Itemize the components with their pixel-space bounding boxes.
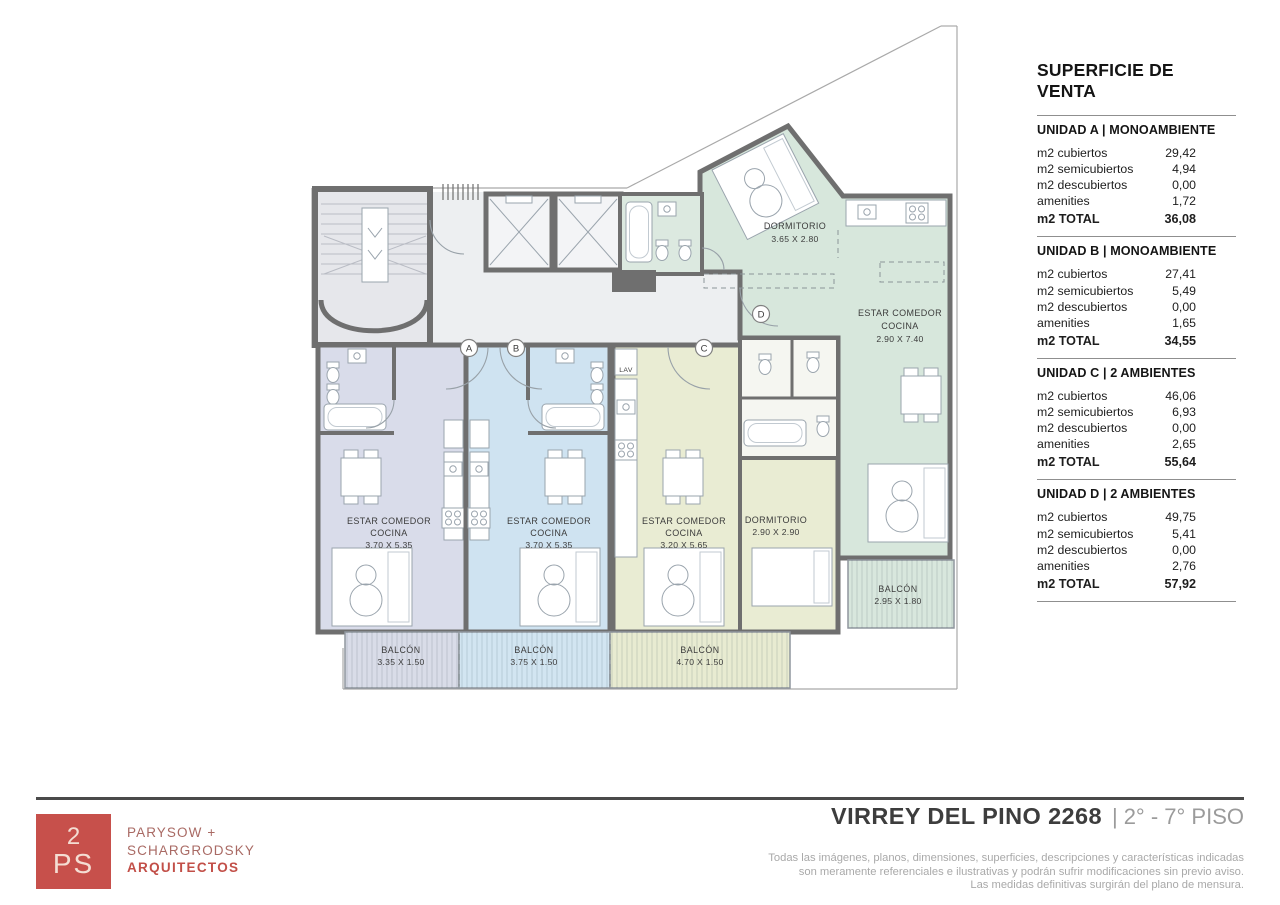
row-label: m2 cubiertos: [1037, 509, 1146, 525]
disclaimer-line-1: Todas las imágenes, planos, dimensiones,…: [768, 852, 1244, 866]
unit-letter-c: C: [696, 340, 713, 357]
table-row: m2 semicubiertos6,93: [1037, 404, 1236, 420]
row-label: m2 cubiertos: [1037, 266, 1146, 282]
unit-letter-b: B: [508, 340, 525, 357]
table-row: amenities1,72: [1037, 193, 1236, 209]
unit-a-room-label: ESTAR COMEDOR: [347, 516, 431, 526]
row-value: 29,42: [1146, 145, 1196, 161]
table-row-total: m2 TOTAL34,55: [1037, 333, 1236, 349]
row-value: 5,49: [1146, 283, 1196, 299]
table-row: m2 descubiertos0,00: [1037, 542, 1236, 558]
unit-c-lav-label: LAV: [619, 367, 633, 374]
table-row: m2 descubiertos0,00: [1037, 177, 1236, 193]
row-label: m2 descubiertos: [1037, 420, 1146, 436]
balcony-b-dims: 3.75 X 1.50: [510, 657, 557, 667]
total-label: m2 TOTAL: [1037, 333, 1146, 349]
balcony-d-label: BALCÓN: [878, 584, 917, 594]
unit-d-dorm-label: DORMITORIO: [764, 221, 826, 231]
disclaimer: Todas las imágenes, planos, dimensiones,…: [768, 852, 1244, 893]
disclaimer-line-3: Las medidas definitivas surgirán del pla…: [768, 879, 1244, 893]
unit-d-room-label: ESTAR COMEDOR: [858, 308, 942, 318]
row-label: amenities: [1037, 558, 1146, 574]
elevator-shafts: [486, 194, 621, 270]
row-value: 2,65: [1146, 436, 1196, 452]
unit-a-area: [318, 345, 466, 632]
row-value: 1,65: [1146, 315, 1196, 331]
unit-c-dorm-dims: 2.90 X 2.90: [752, 527, 799, 537]
total-label: m2 TOTAL: [1037, 454, 1146, 470]
unit-letter-c-label: C: [701, 344, 708, 355]
project-title: VIRREY DEL PINO 2268|2° - 7° PISO: [831, 803, 1244, 830]
unit-a-room-label2: COCINA: [370, 528, 407, 538]
unit-blocks: UNIDAD A | MONOAMBIENTE m2 cubiertos29,4…: [1037, 115, 1236, 602]
unit-c-header: UNIDAD C | 2 AMBIENTES: [1037, 366, 1236, 380]
row-value: 5,41: [1146, 526, 1196, 542]
table-row-total: m2 TOTAL36,08: [1037, 211, 1236, 227]
table-row: m2 cubiertos27,41: [1037, 266, 1236, 282]
row-label: m2 cubiertos: [1037, 145, 1146, 161]
row-label: m2 semicubiertos: [1037, 161, 1146, 177]
table-row: m2 descubiertos0,00: [1037, 420, 1236, 436]
total-value: 57,92: [1146, 576, 1196, 592]
unit-letter-a-label: A: [466, 344, 473, 355]
table-row: m2 cubiertos46,06: [1037, 388, 1236, 404]
row-value: 0,00: [1146, 177, 1196, 193]
balcony-c-dims: 4.70 X 1.50: [676, 657, 723, 667]
unit-a-header: UNIDAD A | MONOAMBIENTE: [1037, 123, 1236, 137]
firm-line-2: SCHARGRODSKY: [127, 842, 255, 860]
row-value: 0,00: [1146, 299, 1196, 315]
title-separator: |: [1112, 804, 1118, 829]
unit-d-header: UNIDAD D | 2 AMBIENTES: [1037, 487, 1236, 501]
table-row: amenities2,76: [1037, 558, 1236, 574]
unit-b-room-label: ESTAR COMEDOR: [507, 516, 591, 526]
table-row-total: m2 TOTAL57,92: [1037, 576, 1236, 592]
logo-number: 2: [67, 825, 80, 849]
row-label: amenities: [1037, 315, 1146, 331]
logo-initials: PS: [53, 850, 94, 878]
balcony-d-dims: 2.95 X 1.80: [874, 596, 921, 606]
unit-a-room-dims: 3.70 X 5.35: [365, 540, 412, 550]
table-row: m2 semicubiertos4,94: [1037, 161, 1236, 177]
table-row-total: m2 TOTAL55,64: [1037, 454, 1236, 470]
unit-letter-b-label: B: [513, 344, 519, 355]
unit-c-room-dims: 3.20 X 5.65: [660, 540, 707, 550]
firm-logo: 2 PS: [36, 814, 111, 889]
row-label: m2 semicubiertos: [1037, 283, 1146, 299]
row-label: m2 descubiertos: [1037, 177, 1146, 193]
row-value: 0,00: [1146, 420, 1196, 436]
row-label: m2 descubiertos: [1037, 299, 1146, 315]
total-label: m2 TOTAL: [1037, 576, 1146, 592]
unit-b-header: UNIDAD B | MONOAMBIENTE: [1037, 244, 1236, 258]
unit-a-block: UNIDAD A | MONOAMBIENTE m2 cubiertos29,4…: [1037, 115, 1236, 236]
table-row: m2 cubiertos49,75: [1037, 509, 1236, 525]
row-label: m2 semicubiertos: [1037, 526, 1146, 542]
balcony-c-label: BALCÓN: [680, 645, 719, 655]
unit-c-block: UNIDAD C | 2 AMBIENTES m2 cubiertos46,06…: [1037, 358, 1236, 479]
firm-line-3: ARQUITECTOS: [127, 859, 255, 877]
row-label: amenities: [1037, 436, 1146, 452]
unit-d-dorm-dims: 3.65 X 2.80: [771, 234, 818, 244]
unit-d-room-dims: 2.90 X 7.40: [876, 334, 923, 344]
unit-b-room-dims: 3.70 X 5.35: [525, 540, 572, 550]
total-value: 36,08: [1146, 211, 1196, 227]
surface-panel: SUPERFICIE DE VENTA UNIDAD A | MONOAMBIE…: [1037, 60, 1236, 602]
firm-line-1: PARYSOW +: [127, 824, 255, 842]
unit-c-area: [613, 338, 838, 632]
row-label: m2 descubiertos: [1037, 542, 1146, 558]
unit-d-room-label2: COCINA: [881, 321, 918, 331]
unit-letter-d: D: [753, 306, 770, 323]
row-value: 4,94: [1146, 161, 1196, 177]
row-value: 1,72: [1146, 193, 1196, 209]
table-row: amenities2,65: [1037, 436, 1236, 452]
row-value: 2,76: [1146, 558, 1196, 574]
table-row: amenities1,65: [1037, 315, 1236, 331]
firm-name: PARYSOW + SCHARGRODSKY ARQUITECTOS: [127, 824, 255, 877]
balcony-a-dims: 3.35 X 1.50: [377, 657, 424, 667]
total-label: m2 TOTAL: [1037, 211, 1146, 227]
balcony-a-label: BALCÓN: [381, 645, 420, 655]
total-value: 34,55: [1146, 333, 1196, 349]
table-row: m2 semicubiertos5,41: [1037, 526, 1236, 542]
row-value: 46,06: [1146, 388, 1196, 404]
unit-letter-a: A: [461, 340, 478, 357]
balcony-b-label: BALCÓN: [514, 645, 553, 655]
row-value: 0,00: [1146, 542, 1196, 558]
stairwell: [315, 189, 430, 345]
row-label: m2 cubiertos: [1037, 388, 1146, 404]
unit-c-room-label: ESTAR COMEDOR: [642, 516, 726, 526]
unit-letter-d-label: D: [758, 310, 765, 321]
page: A B C D ESTAR COMEDOR COCINA 3.70 X 5.35…: [0, 0, 1280, 905]
row-value: 6,93: [1146, 404, 1196, 420]
unit-d-block: UNIDAD D | 2 AMBIENTES m2 cubiertos49,75…: [1037, 479, 1236, 600]
total-value: 55,64: [1146, 454, 1196, 470]
unit-c-dorm-label: DORMITORIO: [745, 515, 807, 525]
project-address: VIRREY DEL PINO 2268: [831, 803, 1102, 829]
panel-title: SUPERFICIE DE VENTA: [1037, 60, 1236, 102]
disclaimer-line-2: son meramente referenciales e ilustrativ…: [768, 866, 1244, 880]
unit-b-area: [466, 345, 610, 632]
unit-b-room-label2: COCINA: [530, 528, 567, 538]
table-row: m2 semicubiertos5,49: [1037, 283, 1236, 299]
unit-c-room-label2: COCINA: [665, 528, 702, 538]
row-value: 49,75: [1146, 509, 1196, 525]
unit-b-block: UNIDAD B | MONOAMBIENTE m2 cubiertos27,4…: [1037, 236, 1236, 357]
table-row: m2 cubiertos29,42: [1037, 145, 1236, 161]
row-value: 27,41: [1146, 266, 1196, 282]
table-row: m2 descubiertos0,00: [1037, 299, 1236, 315]
row-label: m2 semicubiertos: [1037, 404, 1146, 420]
row-label: amenities: [1037, 193, 1146, 209]
footer-divider: [36, 797, 1244, 800]
floors-range: 2° - 7° PISO: [1124, 804, 1244, 829]
